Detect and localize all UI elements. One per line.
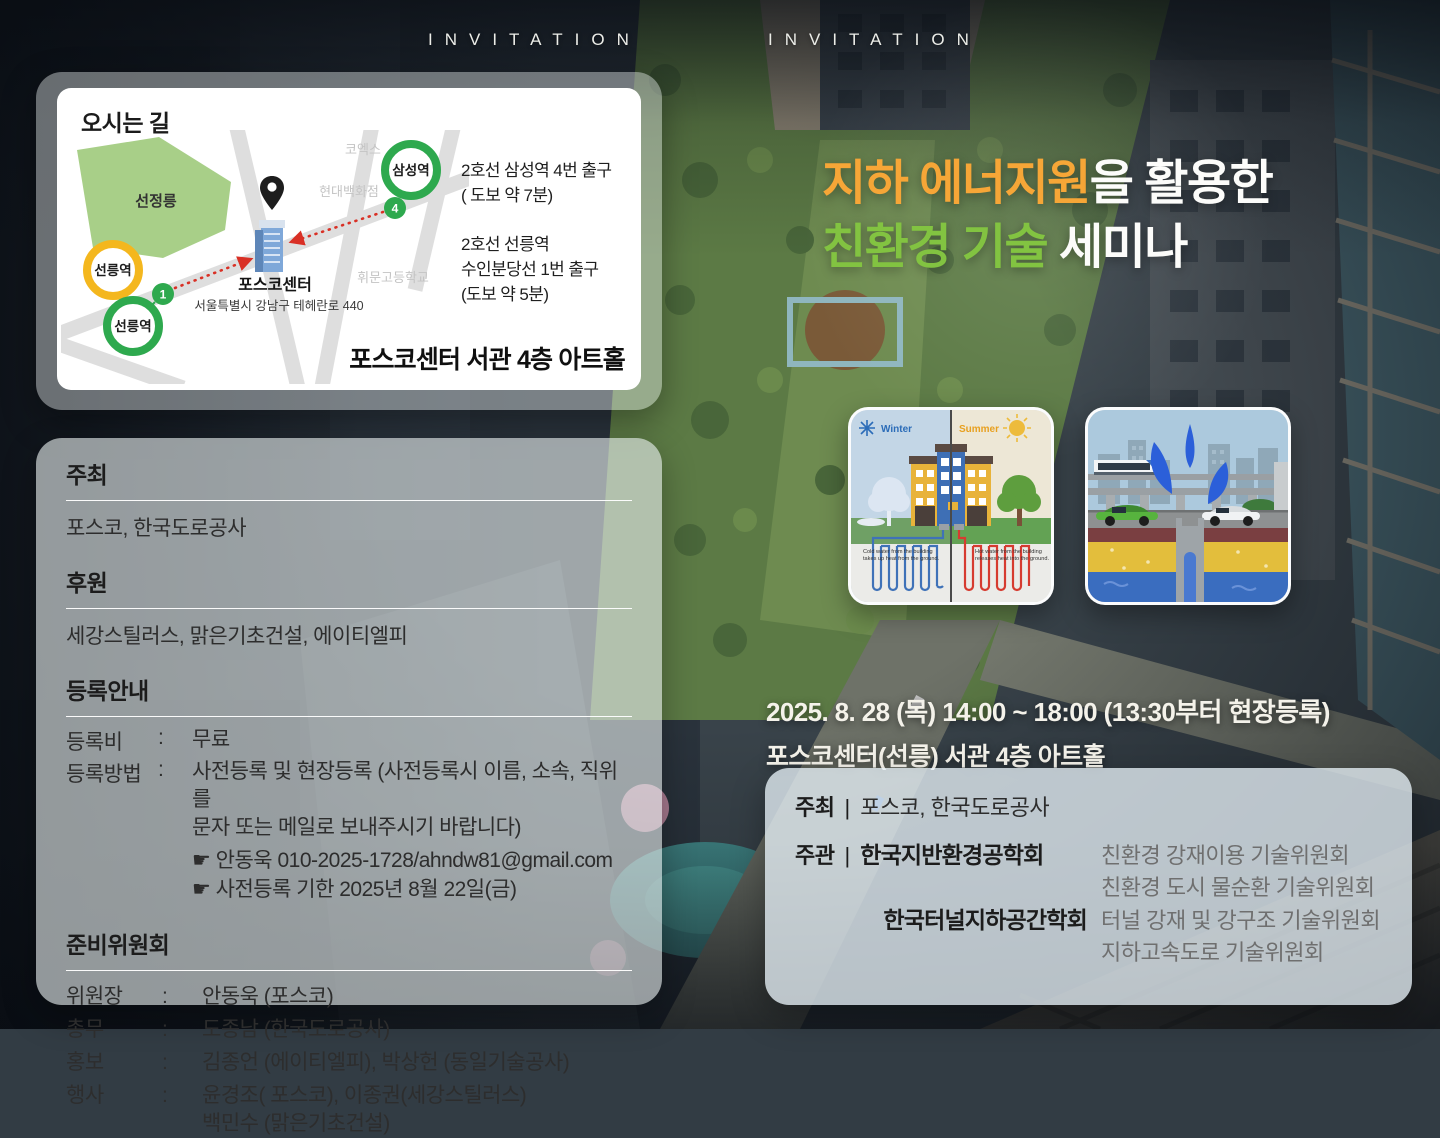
station-seolleung-yellow: 선릉역	[87, 244, 139, 296]
posco-building-icon	[255, 220, 285, 272]
cold-caption-line1: Cold water from the building	[863, 549, 933, 555]
cold-caption-line2: takes up heat from the ground.	[863, 556, 940, 562]
groundwater-illustration-card	[1085, 407, 1291, 605]
committee-role: 위원장	[66, 983, 162, 1011]
exit-4-badge: 4	[384, 197, 406, 219]
event-datetime-block: 2025. 8. 28 (목) 14:00 ~ 18:00 (13:30부터 현…	[766, 692, 1330, 773]
transit-directions: 2호선 삼성역 4번 출구 ( 도보 약 7분) 2호선 선릉역 수인분당선 1…	[461, 158, 641, 331]
organizer-label: 주관	[795, 840, 834, 872]
seminar-title-line1: 지하 에너지원을 활용한	[822, 152, 1272, 216]
committee-row: 위원장 : 안동욱 (포스코)	[66, 983, 632, 1011]
venue-hall-label: 포스코센터 서관 4층 아트홀	[349, 340, 625, 376]
svg-text:1: 1	[160, 288, 167, 302]
svg-text:삼성역: 삼성역	[392, 162, 429, 178]
direction-line: 2호선 삼성역 4번 출구	[461, 158, 641, 183]
summer-label: Summer	[959, 424, 999, 435]
fee-value: 무료	[192, 726, 632, 756]
hyundai-label: 현대백화점	[319, 184, 379, 199]
svg-text:선릉역: 선릉역	[94, 262, 131, 278]
org-organizer-row2: 한국터널지하공간학회 터널 강재 및 강구조 기술위원회	[795, 904, 1382, 937]
direction-line: 2호선 선릉역	[461, 232, 641, 257]
pipe-separator: |	[844, 792, 850, 824]
colon: :	[158, 758, 192, 842]
organizer-society-1: 한국지반환경공학회	[860, 839, 1043, 871]
committee-role: 총무	[66, 1016, 162, 1044]
method-label: 등록방법	[66, 758, 158, 842]
colon: :	[162, 983, 202, 1011]
invitation-text-right: INVITATION	[768, 30, 981, 50]
title-highlight-orange: 지하 에너지원	[822, 157, 1090, 210]
committee-members: 안동욱 (포스코)	[202, 983, 632, 1011]
organizer-society-2: 한국터널지하공간학회	[883, 904, 1087, 936]
committee-name: 친환경 도시 물순환 기술위원회	[1101, 872, 1374, 904]
registration-fee-row: 등록비 : 무료	[66, 726, 632, 756]
colon: :	[162, 1082, 202, 1110]
hot-caption-line2: releases heat into the ground.	[975, 556, 1049, 562]
title-rest: 을 활용한	[1090, 157, 1272, 210]
registration-contact: ☛ 안동욱 010-2025-1728/ahndw81@gmail.com	[192, 846, 632, 875]
method-value: 사전등록 및 현장등록 (사전등록시 이름, 소속, 직위를 문자 또는 메일로…	[192, 758, 632, 842]
host-value: 포스코, 한국도로공사	[860, 792, 1049, 824]
geothermal-diagram: Cold water from the building takes up he…	[851, 410, 1051, 602]
host-heading: 주최	[66, 454, 632, 501]
directions-card-inner: 오시는 길 선정릉 코엑스 현대백화점 휘문고등학교	[57, 88, 641, 390]
title-highlight-green: 친환경 기술	[822, 221, 1047, 274]
station-samseong: 삼성역	[385, 144, 437, 196]
groundwater-illustration	[1088, 410, 1288, 602]
committee-members-continued: 백민수 (맑은기초건설)	[202, 1110, 632, 1138]
building-label: 포스코센터	[238, 276, 312, 294]
committee-name: 친환경 강재이용 기술위원회	[1101, 840, 1349, 872]
committee-heading: 준비위원회	[66, 924, 632, 971]
org-host-row: 주최 | 포스코, 한국도로공사	[795, 792, 1382, 824]
snowflake-icon	[859, 420, 875, 436]
committee-name: 지하고속도로 기술위원회	[1101, 937, 1324, 969]
committee-role: 행사	[66, 1082, 162, 1110]
directions-card: 오시는 길 선정릉 코엑스 현대백화점 휘문고등학교	[36, 72, 662, 410]
host-label: 주최	[795, 792, 834, 824]
seminar-title: 지하 에너지원을 활용한 친환경 기술 세미나	[822, 152, 1272, 280]
org-organizer-row: 주관 | 한국지반환경공학회 친환경 강재이용 기술위원회	[795, 839, 1382, 872]
committee-row: 홍보 : 김종언 (에이티엘피), 박상헌 (동일기술공사)	[66, 1049, 632, 1077]
registration-heading: 등록안내	[66, 670, 632, 717]
committee-row: 행사 : 윤경조( 포스코), 이종권(세강스틸러스)	[66, 1082, 632, 1110]
geothermal-diagram-card: Cold water from the building takes up he…	[848, 407, 1054, 605]
building-address: 서울특별시 강남구 테헤란로 440	[194, 299, 363, 313]
info-panel: 주최 포스코, 한국도로공사 후원 세강스틸러스, 맑은기초건설, 에이티엘피 …	[36, 438, 662, 1005]
fee-label: 등록비	[66, 726, 158, 756]
winter-label: Winter	[881, 424, 912, 435]
committee-role: 홍보	[66, 1049, 162, 1077]
station-seolleung-green: 선릉역	[107, 300, 159, 352]
colon: :	[162, 1049, 202, 1077]
sponsor-value: 세강스틸러스, 맑은기초건설, 에이티엘피	[66, 620, 632, 650]
park-label: 선정릉	[135, 192, 177, 210]
coex-label: 코엑스	[345, 142, 381, 157]
registration-deadline: ☛ 사전등록 기한 2025년 8월 22일(금)	[192, 875, 632, 904]
committee-members: 도종남 (한국도로공사)	[202, 1016, 632, 1044]
committee-name: 터널 강재 및 강구조 기술위원회	[1101, 905, 1380, 937]
svg-text:4: 4	[392, 202, 399, 216]
method-line1: 사전등록 및 현장등록 (사전등록시 이름, 소속, 직위를	[192, 760, 618, 811]
direction-line: (도보 약 5분)	[461, 282, 641, 307]
direction-line: 수인분당선 1번 출구	[461, 257, 641, 282]
colon: :	[158, 726, 192, 756]
directions-seolleung: 2호선 선릉역 수인분당선 1번 출구 (도보 약 5분)	[461, 232, 641, 307]
title-rest: 세미나	[1047, 221, 1187, 274]
sponsor-heading: 후원	[66, 562, 632, 609]
seminar-title-line2: 친환경 기술 세미나	[822, 216, 1272, 280]
committee-members: 김종언 (에이티엘피), 박상헌 (동일기술공사)	[202, 1049, 632, 1077]
whimoon-label: 휘문고등학교	[357, 270, 429, 285]
method-line2: 문자 또는 메일로 보내주시기 바랍니다)	[192, 816, 521, 839]
committee-members: 윤경조( 포스코), 이종권(세강스틸러스)	[202, 1082, 632, 1110]
org-committee-row: 친환경 도시 물순환 기술위원회	[795, 872, 1382, 904]
committee-row: 총무 : 도종남 (한국도로공사)	[66, 1016, 632, 1044]
org-committee-row: 지하고속도로 기술위원회	[795, 937, 1382, 969]
event-datetime: 2025. 8. 28 (목) 14:00 ~ 18:00 (13:30부터 현…	[766, 692, 1330, 729]
map-pin-icon	[260, 176, 284, 210]
pipe-separator: |	[844, 840, 850, 872]
registration-method-row: 등록방법 : 사전등록 및 현장등록 (사전등록시 이름, 소속, 직위를 문자…	[66, 758, 632, 842]
invitation-text-left: INVITATION	[428, 30, 641, 50]
directions-samseong: 2호선 삼성역 4번 출구 ( 도보 약 7분)	[461, 158, 641, 208]
organizer-panel: 주최 | 포스코, 한국도로공사 주관 | 한국지반환경공학회 친환경 강재이용…	[765, 768, 1412, 1005]
hot-caption-line1: Hot water from the building	[975, 549, 1042, 555]
svg-text:선릉역: 선릉역	[114, 318, 151, 334]
direction-line: ( 도보 약 7분)	[461, 183, 641, 208]
host-value: 포스코, 한국도로공사	[66, 512, 632, 542]
colon: :	[162, 1016, 202, 1044]
